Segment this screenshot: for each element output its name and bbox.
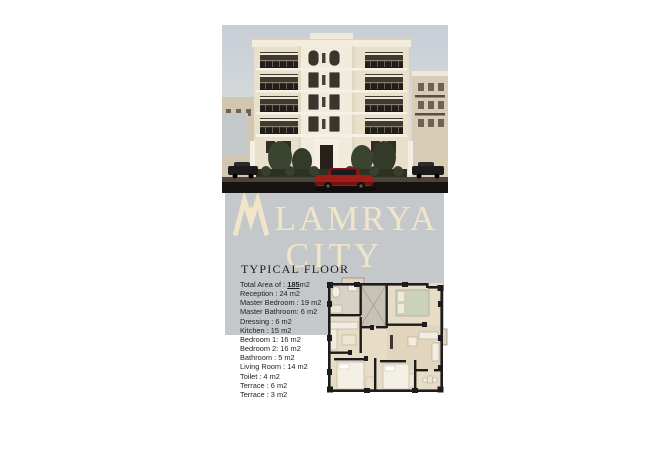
spec-total-label: Total Area of : xyxy=(240,280,285,289)
spec-total-area: Total Area of : 185m2 xyxy=(240,280,335,289)
brand-name-text: LAMRYA xyxy=(275,201,439,236)
spec-row: Living Room : 14 m2 xyxy=(240,362,335,371)
spec-row: Bathroom : 5 m2 xyxy=(240,353,335,362)
spec-row: Kitchen : 15 m2 xyxy=(240,326,335,335)
building-render-illustration xyxy=(222,25,448,193)
spec-row: Bedroom 2: 16 m2 xyxy=(240,344,335,353)
spec-row: Master Bathroom: 6 m2 xyxy=(240,307,335,316)
spec-total-unit: m2 xyxy=(300,280,310,289)
master-bed xyxy=(396,290,429,316)
spec-row: Dressing : 6 m2 xyxy=(240,317,335,326)
flyer-page: LAMRYA CITY TYPICAL FLOOR Total Area of … xyxy=(0,0,668,452)
floor-plan-drawing xyxy=(324,277,448,396)
floor-plan xyxy=(324,277,448,396)
section-title: TYPICAL FLOOR xyxy=(241,262,349,277)
area-spec-list: Total Area of : 185m2 Reception : 24 m2 … xyxy=(240,280,335,399)
spec-row: Terrace : 3 m2 xyxy=(240,390,335,399)
spec-total-value: 185 xyxy=(287,280,299,289)
alamrya-monogram-icon xyxy=(231,193,271,241)
spec-row: Master Bedroom : 19 m2 xyxy=(240,298,335,307)
building-photo xyxy=(222,25,448,193)
spec-row: Toilet : 4 m2 xyxy=(240,372,335,381)
spec-row: Bedroom 1: 16 m2 xyxy=(240,335,335,344)
spec-row: Terrace : 6 m2 xyxy=(240,381,335,390)
spec-row: Reception : 24 m2 xyxy=(240,289,335,298)
